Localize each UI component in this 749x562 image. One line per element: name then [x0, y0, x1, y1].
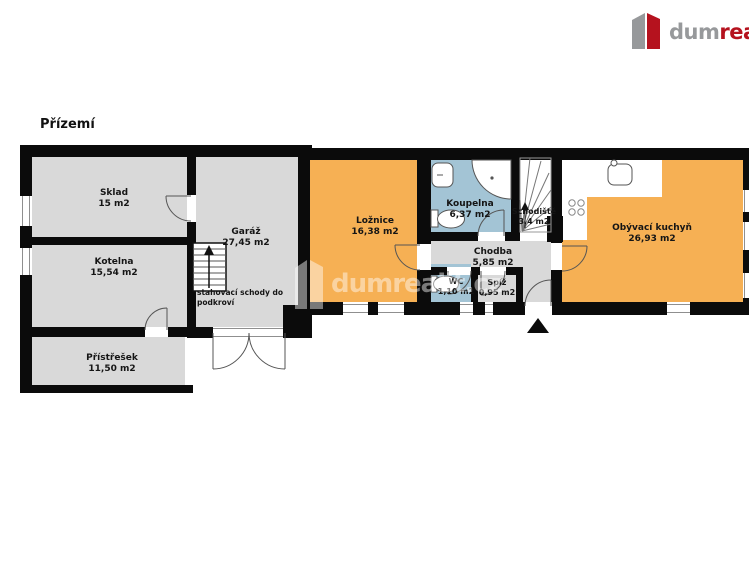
wall — [187, 327, 215, 338]
room-label-kotelna: Kotelna 15,54 m2 — [90, 257, 137, 279]
wall — [20, 385, 193, 393]
room-label-wc: WC 1,10 m2 — [438, 277, 474, 297]
door-gap — [551, 243, 562, 270]
floorplan-page: dumrealit.cz Přízemí — [0, 0, 749, 562]
kitchen-sink-icon — [608, 164, 632, 185]
bathtub-drain — [490, 176, 493, 179]
wall — [187, 145, 196, 337]
floorplan-canvas — [0, 0, 749, 562]
brand-building-icon — [630, 11, 662, 51]
room-label-schodiste: Schodiště 3,4 m2 — [512, 207, 556, 227]
toilet-tank — [431, 210, 438, 227]
door-gap — [478, 232, 505, 241]
kitchen-counter-left — [562, 160, 587, 240]
room-label-chodba: Chodba 5,85 m2 — [473, 247, 514, 269]
room-label-garaz: Garáž 27,45 m2 — [222, 227, 269, 249]
room-kotelna-fill — [24, 241, 194, 333]
brand-wordmark: dumrealit.cz — [669, 13, 749, 51]
entry-door-gap — [525, 302, 552, 315]
window — [460, 302, 473, 315]
window — [743, 273, 749, 298]
window — [378, 302, 404, 315]
window — [667, 302, 690, 315]
stairs-opening — [520, 232, 547, 241]
room-label-spiz: Spíž 0,95 m2 — [479, 278, 515, 298]
room-label-sklad: Sklad 15 m2 — [98, 188, 129, 210]
attic-stairs-icon — [193, 243, 226, 291]
door-gap — [447, 267, 471, 275]
brand-word-dum: dum — [669, 20, 719, 44]
wall — [516, 267, 523, 304]
floor-title: Přízemí — [40, 117, 95, 132]
room-label-koupelna: Koupelna 6,37 m2 — [446, 199, 494, 221]
garage-double-door — [213, 333, 285, 369]
room-label-kuchyn: Obývací kuchyň 26,93 m2 — [612, 223, 692, 245]
window — [20, 248, 32, 275]
window — [20, 196, 32, 226]
door-gap — [417, 244, 431, 270]
door-gap — [187, 195, 196, 222]
attic-stairs-note: stahovací schody do podkroví — [197, 288, 283, 308]
entrance-marker-icon — [527, 318, 549, 333]
kitchen-sink-tap — [611, 160, 617, 166]
door-gap — [145, 327, 168, 337]
wall — [20, 237, 193, 245]
window — [743, 222, 749, 250]
wall — [20, 145, 312, 157]
wall — [417, 158, 431, 304]
window — [743, 190, 749, 212]
wall — [511, 158, 520, 240]
window — [485, 302, 493, 315]
window — [343, 302, 368, 315]
wall — [298, 145, 310, 320]
room-label-pristresek: Přístřešek 11,50 m2 — [86, 353, 138, 375]
brand-word-realit: realit — [719, 20, 749, 44]
room-label-loznice: Ložnice 16,38 m2 — [351, 216, 398, 238]
brand-logo: dumrealit.cz — [630, 11, 749, 51]
wall — [551, 158, 562, 304]
